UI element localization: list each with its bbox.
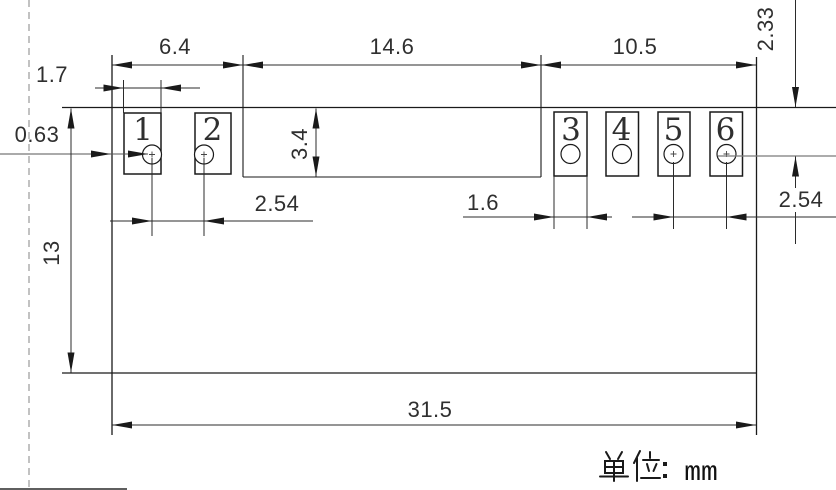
dim-text-10-5: 10.5 bbox=[613, 34, 658, 59]
dim-text-1-6: 1.6 bbox=[467, 190, 499, 215]
arrowhead bbox=[223, 62, 243, 69]
unit-label-colon bbox=[663, 462, 667, 478]
stroke bbox=[654, 464, 657, 471]
arrowhead bbox=[534, 214, 554, 221]
arrowhead bbox=[313, 157, 320, 177]
stroke bbox=[618, 452, 622, 459]
arrowhead bbox=[243, 62, 263, 69]
colon-dot bbox=[663, 474, 667, 478]
pin-number-6: 6 bbox=[716, 112, 736, 148]
arrowhead bbox=[161, 85, 181, 92]
pin-number-2: 2 bbox=[203, 112, 223, 148]
colon-dot bbox=[663, 462, 667, 466]
pin-number-3: 3 bbox=[561, 112, 581, 148]
dim-left-pitch: 2.54 bbox=[110, 191, 313, 225]
arrowhead bbox=[587, 214, 607, 221]
pin-number-1: 1 bbox=[133, 112, 153, 148]
arrowhead bbox=[521, 62, 541, 69]
arrowhead bbox=[736, 62, 756, 69]
arrowhead bbox=[792, 87, 799, 107]
dim-text-6-4: 6.4 bbox=[159, 34, 191, 59]
pin-number-5: 5 bbox=[664, 112, 684, 148]
arrowhead bbox=[68, 353, 75, 373]
dim-text-14-6: 14.6 bbox=[370, 34, 415, 59]
dim-step-height: 3.4 bbox=[287, 109, 320, 177]
dim-text-0-63: 0.63 bbox=[15, 122, 60, 147]
dim-text-31-5: 31.5 bbox=[408, 397, 453, 422]
pin-number-4: 4 bbox=[612, 112, 632, 148]
arrowhead bbox=[104, 85, 124, 92]
dim-text-3-4: 3.4 bbox=[287, 128, 312, 160]
dim-pad1-width: 1.7 bbox=[36, 62, 200, 92]
arrowhead bbox=[91, 151, 111, 158]
hole-center-marks bbox=[149, 151, 730, 158]
unit-label-cjk-wei-glyph bbox=[634, 451, 660, 481]
footprint-dimension-drawing: 6.4 14.6 10.5 1.7 0.63 13 3.4 2.33 bbox=[0, 0, 836, 490]
arrowhead bbox=[112, 62, 132, 69]
unit-label: mm bbox=[600, 451, 718, 489]
stroke bbox=[647, 464, 649, 471]
unit-value: mm bbox=[684, 458, 718, 489]
dim-text-13: 13 bbox=[39, 240, 64, 265]
unit-label-cjk-dan-glyph bbox=[600, 452, 628, 481]
dim-top-row: 6.4 14.6 10.5 bbox=[112, 34, 756, 69]
stroke bbox=[606, 452, 610, 459]
dim-body-height: 13 bbox=[39, 109, 75, 373]
arrowhead bbox=[68, 109, 75, 129]
arrowhead bbox=[727, 214, 747, 221]
arrowhead bbox=[204, 218, 224, 225]
dim-bottom-right-row: 1.6 2.54 bbox=[463, 187, 836, 221]
arrowhead bbox=[132, 218, 152, 225]
dim-text-2-54-left: 2.54 bbox=[255, 191, 300, 216]
arrowhead bbox=[654, 214, 674, 221]
arrowhead bbox=[313, 109, 320, 129]
dim-text-1-7: 1.7 bbox=[36, 62, 68, 87]
drawing-canvas: 6.4 14.6 10.5 1.7 0.63 13 3.4 2.33 bbox=[0, 0, 836, 490]
dim-text-2-33: 2.33 bbox=[753, 7, 778, 52]
dim-body-width: 31.5 bbox=[112, 397, 756, 429]
arrowhead bbox=[792, 157, 799, 177]
arrowhead bbox=[736, 422, 756, 429]
arrowhead bbox=[112, 422, 132, 429]
dim-text-2-54-right: 2.54 bbox=[779, 187, 824, 212]
arrowhead bbox=[541, 62, 561, 69]
